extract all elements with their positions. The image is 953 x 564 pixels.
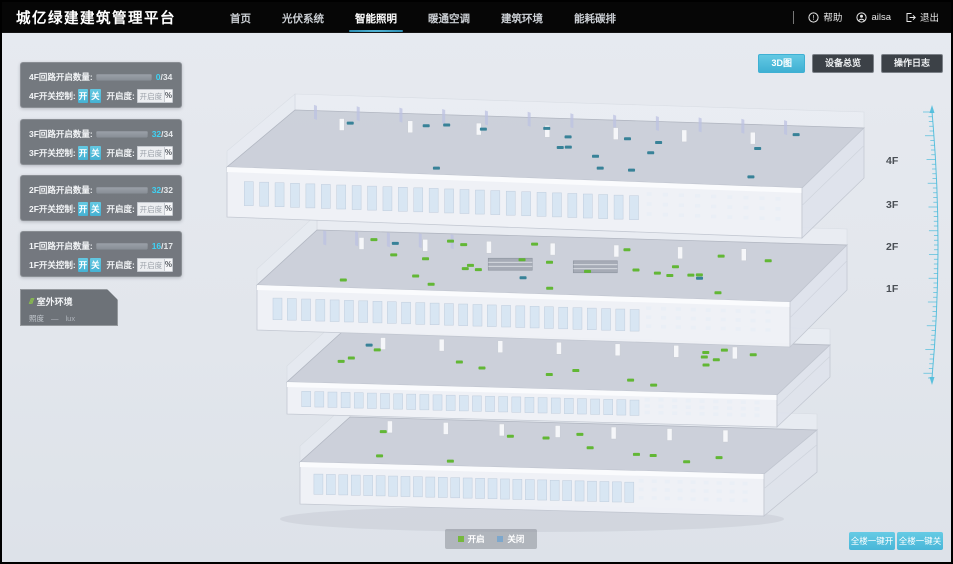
percent-button[interactable]: %	[164, 258, 173, 272]
switch-control-label: 3F开关控制:	[29, 147, 76, 159]
app-window: 城亿绿建建筑管理平台 首页 光伏系统 智能照明 暖通空调 建筑环境 能耗碳排 !…	[0, 0, 953, 564]
dim-level-input[interactable]	[137, 258, 164, 272]
legend-on: 开启	[458, 533, 485, 545]
nav-item-pv-system[interactable]: 光伏系统	[280, 7, 326, 28]
nav-item-energy-carbon[interactable]: 能耗碳排	[572, 7, 618, 28]
user-icon	[856, 12, 867, 23]
circuit-count-label: 2F回路开启数量:	[29, 184, 93, 196]
slash-stripes-icon: ///	[29, 297, 33, 306]
floor-panel-2f: 2F回路开启数量: 32/32 2F开关控制: 开 关 开启度: %	[20, 175, 182, 221]
dim-level-label: 开启度:	[107, 259, 135, 271]
circuit-count-value: 0/34	[156, 72, 173, 82]
nav-item-home[interactable]: 首页	[228, 7, 253, 28]
circuit-count-value: 16/17	[152, 241, 173, 251]
legend-off-label: 关闭	[507, 533, 524, 545]
floor-ruler-scale	[910, 104, 950, 386]
dim-level-input[interactable]	[137, 146, 164, 160]
floor-scale-2f[interactable]: 2F	[886, 241, 912, 253]
topbar-right: ! 帮助 ailsa 退出	[793, 10, 939, 24]
nav-item-hvac[interactable]: 暖通空调	[426, 7, 472, 28]
dim-level-label: 开启度:	[107, 147, 135, 159]
circuit-count-label: 1F回路开启数量:	[29, 240, 93, 252]
outdoor-env-panel: /// 室外环境 照度 — lux	[20, 289, 118, 326]
circuit-count-label: 4F回路开启数量:	[29, 71, 93, 83]
building-3d-view[interactable]	[202, 87, 892, 532]
circuit-progress-bar	[96, 74, 152, 81]
nav-item-building-env[interactable]: 建筑环境	[499, 7, 545, 28]
floor-scale-4f[interactable]: 4F	[886, 155, 912, 167]
top-nav-bar: 城亿绿建建筑管理平台 首页 光伏系统 智能照明 暖通空调 建筑环境 能耗碳排 !…	[2, 2, 951, 33]
illuminance-unit: lux	[66, 314, 76, 323]
help-button[interactable]: ! 帮助	[808, 10, 842, 24]
help-label: 帮助	[823, 10, 842, 24]
main-nav: 首页 光伏系统 智能照明 暖通空调 建筑环境 能耗碳排	[228, 7, 618, 28]
dim-level-input[interactable]	[137, 89, 164, 103]
floor-scale-3f[interactable]: 3F	[886, 199, 912, 211]
app-title: 城亿绿建建筑管理平台	[16, 7, 176, 28]
switch-on-button[interactable]: 开	[78, 146, 88, 160]
bulk-control-buttons: 全楼一键开 全楼一键关	[849, 532, 943, 550]
circuit-progress-bar	[96, 187, 148, 194]
floor-panel-4f: 4F回路开启数量: 0/34 4F开关控制: 开 关 开启度: %	[20, 62, 182, 108]
all-on-button[interactable]: 全楼一键开	[849, 532, 895, 550]
switch-off-button[interactable]: 关	[90, 146, 100, 160]
circuit-progress-bar	[96, 131, 148, 138]
switch-control-label: 4F开关控制:	[29, 90, 76, 102]
nav-item-smart-lighting[interactable]: 智能照明	[353, 7, 399, 28]
switch-off-button[interactable]: 关	[90, 258, 100, 272]
operation-log-button[interactable]: 操作日志	[881, 54, 943, 73]
user-menu[interactable]: ailsa	[856, 12, 891, 23]
svg-text:!: !	[813, 15, 815, 22]
switch-on-button[interactable]: 开	[78, 89, 88, 103]
logout-button[interactable]: 退出	[905, 10, 939, 24]
switch-off-button[interactable]: 关	[90, 202, 100, 216]
dim-level-label: 开启度:	[107, 203, 135, 215]
logout-icon	[905, 12, 916, 23]
outdoor-env-title: 室外环境	[37, 295, 73, 308]
switch-on-button[interactable]: 开	[78, 202, 88, 216]
dim-level-input[interactable]	[137, 202, 164, 216]
circuit-progress-bar	[96, 243, 148, 250]
view-mode-buttons: 3D图 设备总览 操作日志	[758, 54, 943, 73]
percent-button[interactable]: %	[164, 89, 173, 103]
user-name: ailsa	[871, 12, 891, 23]
dim-level-label: 开启度:	[107, 90, 135, 102]
device-overview-button[interactable]: 设备总览	[812, 54, 874, 73]
floor-panel-1f: 1F回路开启数量: 16/17 1F开关控制: 开 关 开启度: %	[20, 231, 182, 277]
floor-panel-3f: 3F回路开启数量: 32/34 3F开关控制: 开 关 开启度: %	[20, 119, 182, 165]
switch-control-label: 2F开关控制:	[29, 203, 76, 215]
circuit-count-value: 32/34	[152, 129, 173, 139]
switch-on-button[interactable]: 开	[78, 258, 88, 272]
legend-on-swatch	[458, 536, 464, 542]
logout-label: 退出	[920, 10, 939, 24]
floor-scale-1f[interactable]: 1F	[886, 283, 912, 295]
switch-off-button[interactable]: 关	[90, 89, 100, 103]
circuit-count-value: 32/32	[152, 185, 173, 195]
illuminance-value: —	[51, 314, 59, 323]
view-3d-button[interactable]: 3D图	[758, 54, 805, 73]
legend-off: 关闭	[497, 533, 524, 545]
percent-button[interactable]: %	[164, 146, 173, 160]
illuminance-label: 照度	[29, 313, 44, 324]
lighting-legend: 开启 关闭	[445, 529, 537, 549]
info-circle-icon: !	[808, 12, 819, 23]
switch-control-label: 1F开关控制:	[29, 259, 76, 271]
legend-off-swatch	[497, 536, 503, 542]
divider	[793, 11, 794, 24]
percent-button[interactable]: %	[164, 202, 173, 216]
legend-on-label: 开启	[468, 533, 485, 545]
all-off-button[interactable]: 全楼一键关	[897, 532, 943, 550]
circuit-count-label: 3F回路开启数量:	[29, 128, 93, 140]
